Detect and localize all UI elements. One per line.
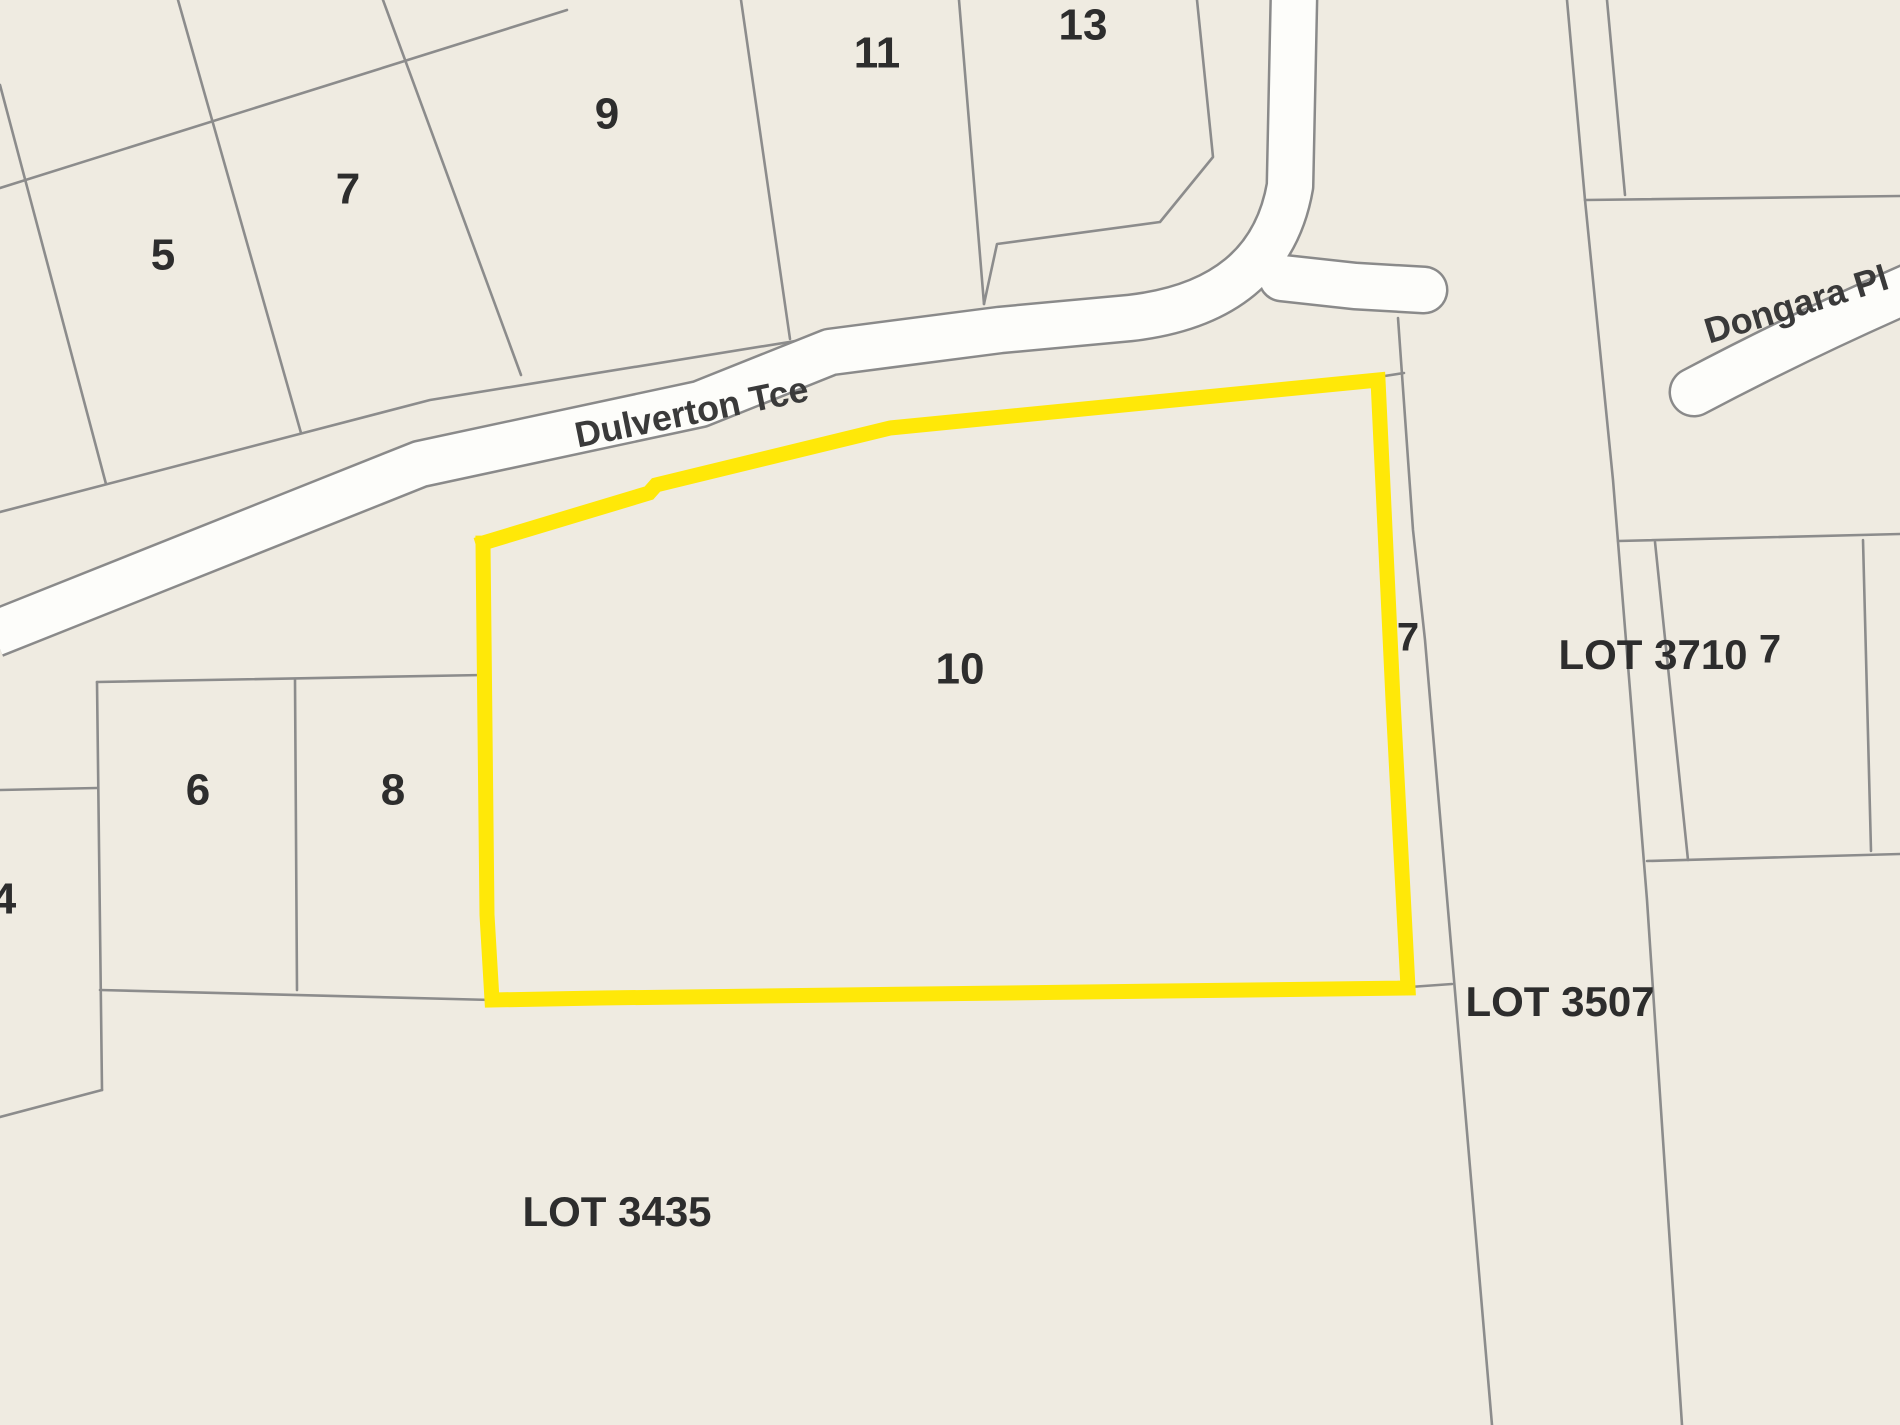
lot-label-7-north: 7 xyxy=(336,165,360,214)
lot-label-3507: LOT 3507 xyxy=(1465,978,1654,1025)
lot-label-5: 5 xyxy=(151,231,175,280)
lot-label-6: 6 xyxy=(186,766,210,815)
lot-label-3435: LOT 3435 xyxy=(522,1188,711,1235)
lot-label-3710: LOT 3710 xyxy=(1558,631,1747,678)
lot-label-13: 13 xyxy=(1059,1,1108,50)
map-background xyxy=(0,0,1900,1425)
lot-label-3710-7: 7 xyxy=(1759,628,1781,672)
road-fill-dulverton-east-stub xyxy=(1282,278,1424,290)
lot-label-11: 11 xyxy=(854,29,901,78)
cadastral-map: Dulverton TceDongara Pl5791113684107LOT … xyxy=(0,0,1900,1425)
lot-label-7-east: 7 xyxy=(1397,616,1419,660)
lot-label-4: 4 xyxy=(0,875,17,924)
map-svg: Dulverton TceDongara Pl5791113684107LOT … xyxy=(0,0,1900,1425)
lot-label-10-highlighted: 10 xyxy=(936,645,985,694)
lot-label-8: 8 xyxy=(381,766,405,815)
lot-label-9: 9 xyxy=(595,90,619,139)
